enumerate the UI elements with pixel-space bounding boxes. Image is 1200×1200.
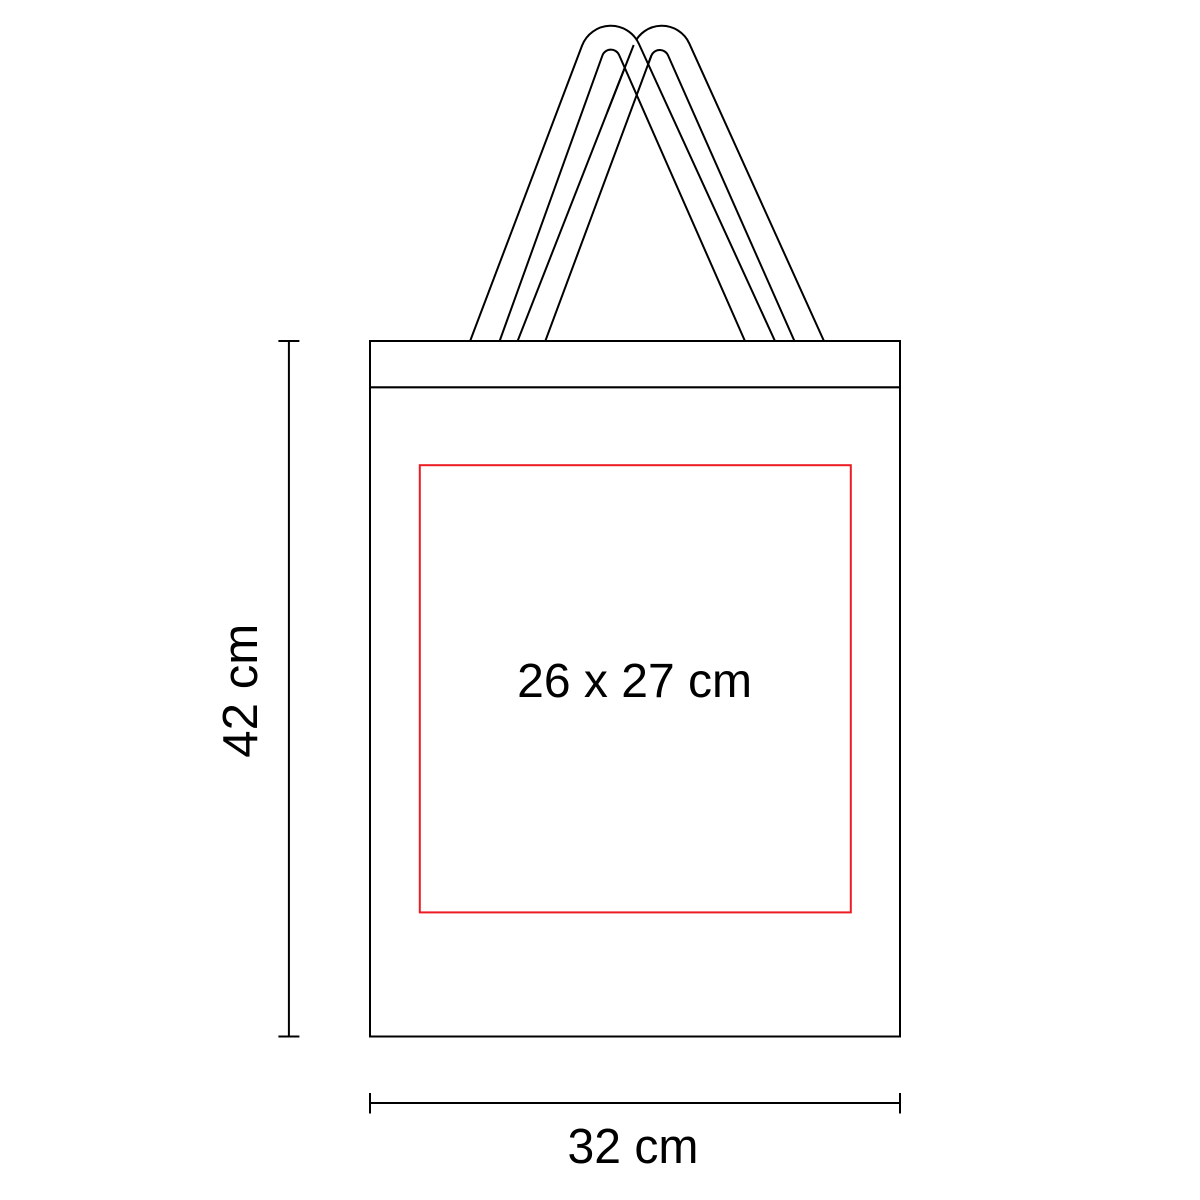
svg-text:26 x 27 cm: 26 x 27 cm: [517, 654, 752, 708]
svg-text:32 cm: 32 cm: [568, 1119, 699, 1174]
svg-text:42 cm: 42 cm: [213, 624, 268, 758]
